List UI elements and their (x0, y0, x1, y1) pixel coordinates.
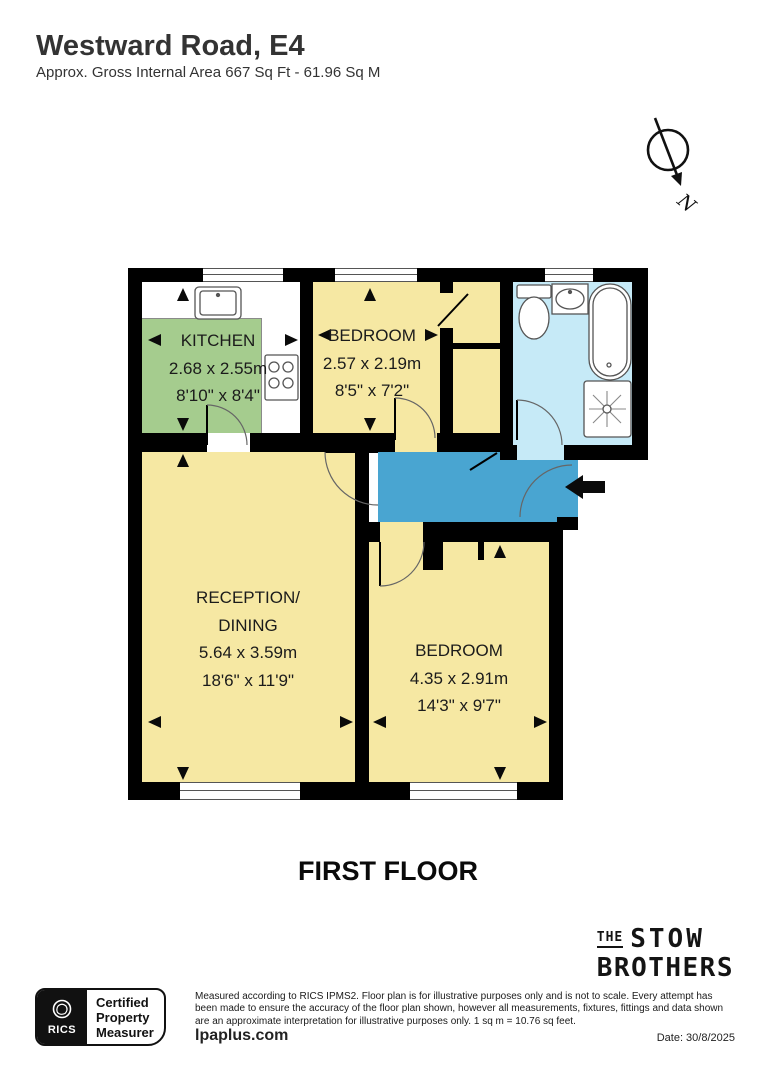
wall-bathroom-bottom-left (500, 445, 517, 460)
website-label: lpaplus.com (195, 1027, 288, 1045)
bedroom1-door-threshold (395, 433, 437, 452)
wall-mid-band-3 (437, 433, 500, 452)
reception-window (180, 782, 300, 800)
room-name: BEDROOM (410, 637, 508, 665)
rics-org-label: RICS (48, 1024, 76, 1036)
reception-label: RECEPTION/ DINING 5.64 x 3.59m 18'6" x 1… (196, 584, 300, 694)
chimney-step (478, 542, 484, 560)
rics-line: Measurer (96, 1025, 154, 1040)
floor-label: FIRST FLOOR (128, 856, 648, 887)
wall-left (128, 268, 142, 800)
bedroom1-window (335, 268, 417, 282)
wall-entry-sill (557, 517, 578, 530)
logo-line1: THESTOW (597, 926, 734, 952)
rics-badge-text: Certified Property Measurer (87, 990, 164, 1044)
bedroom2-label: BEDROOM 4.35 x 2.91m 14'3" x 9'7" (410, 637, 508, 720)
rics-badge-mark: RICS (37, 990, 87, 1044)
wall-reception-bedroom2 (355, 447, 369, 782)
wall-hall-bottom-2 (423, 522, 560, 542)
compass-icon: N (628, 100, 728, 215)
wall-mid-band-1 (142, 433, 207, 452)
bedroom2-window (410, 782, 517, 800)
compass-arrowhead (671, 172, 682, 186)
room-dim-metric: 2.57 x 2.19m (323, 350, 421, 378)
bathroom-door-threshold (517, 445, 564, 460)
rics-lion-icon (49, 998, 75, 1022)
wall-bathroom-left (500, 282, 513, 445)
wall-bedroom1-right-bottom (440, 328, 453, 433)
wall-bedroom1-right-top (440, 282, 453, 293)
room-dim-metric: 2.68 x 2.55m (169, 355, 267, 383)
stow-brothers-logo: THESTOW BROTHERS (597, 926, 734, 981)
floorplan-page: Westward Road, E4 Approx. Gross Internal… (0, 0, 764, 1080)
chimney-pier (423, 542, 443, 570)
room-dim-imperial: 14'3" x 9'7" (410, 692, 508, 720)
page-title: Westward Road, E4 (36, 30, 305, 63)
logo-stow: STOW (630, 924, 705, 954)
hallway-room (378, 452, 560, 522)
room-name: RECEPTION/ (196, 584, 300, 612)
closet-door-threshold (440, 293, 453, 328)
wall-strip-divider (453, 343, 500, 349)
logo-the: THE (597, 931, 623, 948)
room-name: KITCHEN (169, 327, 267, 355)
disclaimer-text: Measured according to RICS IPMS2. Floor … (195, 991, 737, 1028)
wall-hall-bottom-1 (369, 522, 380, 542)
entry-door-nub (560, 460, 578, 517)
compass-north-label: N (672, 189, 701, 215)
date-label: Date: 30/8/2025 (657, 1032, 735, 1044)
storage-strip (453, 282, 500, 445)
bedroom2-door-threshold (380, 522, 423, 542)
room-dim-imperial: 18'6" x 11'9" (196, 667, 300, 695)
wall-bathroom-bottom-right (564, 445, 648, 460)
wall-kitchen-bedroom1 (300, 282, 313, 447)
bathroom-window (545, 268, 593, 282)
room-name: BEDROOM (323, 322, 421, 350)
rics-line: Property (96, 1010, 154, 1025)
wall-mid-band-2 (250, 433, 395, 452)
kitchen-label: KITCHEN 2.68 x 2.55m 8'10" x 8'4" (169, 327, 267, 410)
wall-bathroom-right (632, 268, 648, 460)
logo-brothers: BROTHERS (597, 955, 734, 981)
wall-right (549, 522, 563, 800)
rics-badge: RICS Certified Property Measurer (35, 988, 166, 1046)
floor-plan: KITCHEN 2.68 x 2.55m 8'10" x 8'4" BEDROO… (128, 268, 648, 800)
kitchen-window (203, 268, 283, 282)
bathroom-room (513, 282, 632, 445)
rics-line: Certified (96, 995, 154, 1010)
bedroom1-label: BEDROOM 2.57 x 2.19m 8'5" x 7'2" (323, 322, 421, 405)
room-dim-metric: 4.35 x 2.91m (410, 665, 508, 693)
room-dim-imperial: 8'5" x 7'2" (323, 377, 421, 405)
room-name: DINING (196, 612, 300, 640)
room-dim-metric: 5.64 x 3.59m (196, 639, 300, 667)
room-dim-imperial: 8'10" x 8'4" (169, 382, 267, 410)
page-subtitle: Approx. Gross Internal Area 667 Sq Ft - … (36, 64, 380, 81)
